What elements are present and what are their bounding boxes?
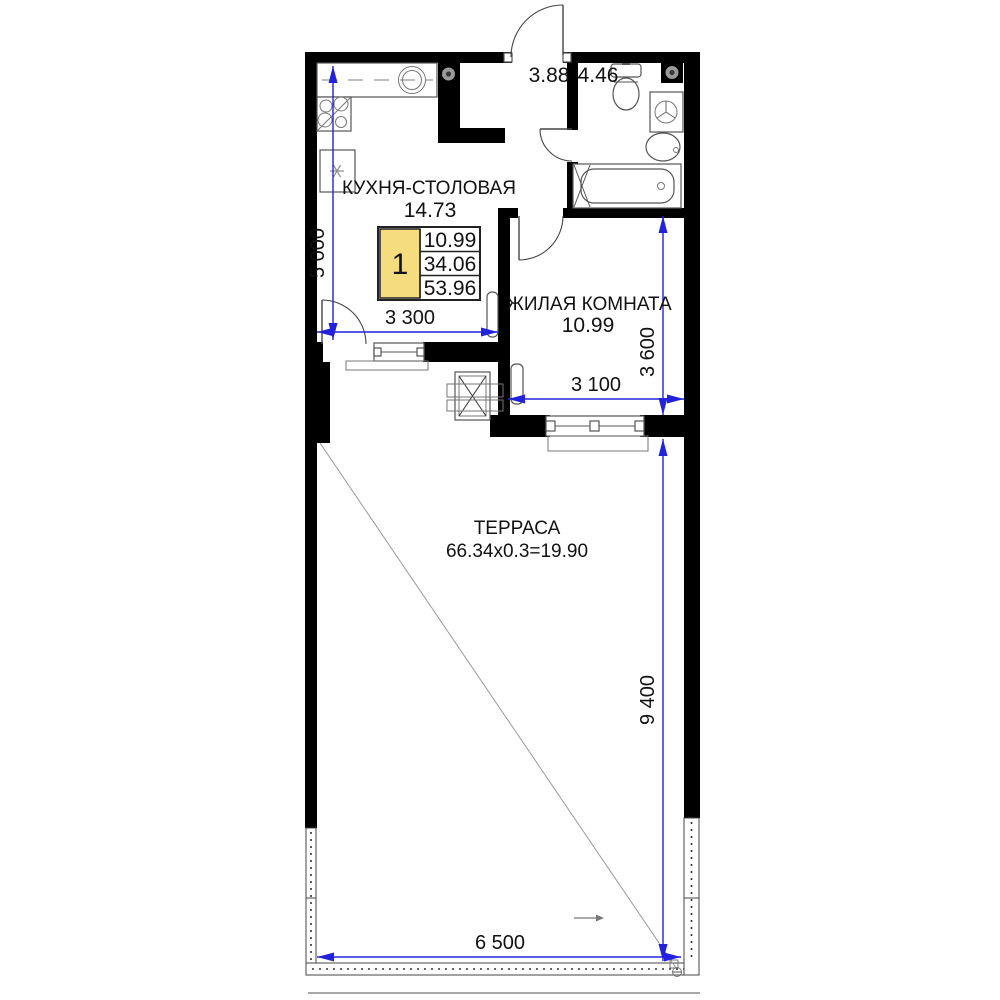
kitchen-window [346,343,428,370]
washing-machine-icon [650,92,683,132]
terrace-label: ТЕРРАСА [474,518,561,539]
bathtub-icon [573,164,681,208]
apartment-area-value: 34.06 [424,253,477,276]
dim-label: 3 300 [385,307,435,329]
stove-icon [317,97,351,131]
area-table: 1 10.99 34.06 53.96 [378,227,480,300]
terrace-area: 66.34x0.3=19.90 [446,541,588,562]
kitchen-area: 14.73 [404,199,457,222]
dim-label: 6 500 [475,932,525,954]
dim-living-depth: 3 600 [637,216,668,415]
north-arrow [574,915,604,922]
bathroom-door [540,129,572,161]
living-area-value: 10.99 [424,229,477,252]
washbasin-icon [646,133,680,161]
duct-shaft-icon [447,372,503,420]
hallway-area: 3.88 [529,64,570,87]
floor-plan-drawing: 5 000 3 300 3 600 3 100 9 400 [0,0,1000,1000]
entry-door [504,5,571,62]
dim-label: 9 400 [637,675,659,725]
dim-label: 3 100 [571,374,621,396]
kitchen-label: КУХНЯ-СТОЛОВАЯ [342,178,516,199]
living-area: 10.99 [562,314,615,337]
dim-kitchen-width: 3 300 [317,307,498,337]
bathroom-area: 4.46 [578,64,619,87]
living-label: ЖИЛАЯ КОМНАТА [506,294,672,315]
dim-label: 5 000 [307,228,329,278]
terrace-door [322,300,366,344]
living-room-window [546,416,648,451]
total-area-value: 53.96 [424,277,477,300]
dim-label: 3 600 [637,327,659,377]
dim-terrace-width: 6 500 [317,932,681,962]
floor-plan-page: 5 000 3 300 3 600 3 100 9 400 [0,0,1000,1000]
dim-living-width: 3 100 [508,374,684,404]
living-room-door [519,216,563,260]
dim-terrace-depth: 9 400 [637,439,668,961]
rooms-count: 1 [392,248,409,281]
